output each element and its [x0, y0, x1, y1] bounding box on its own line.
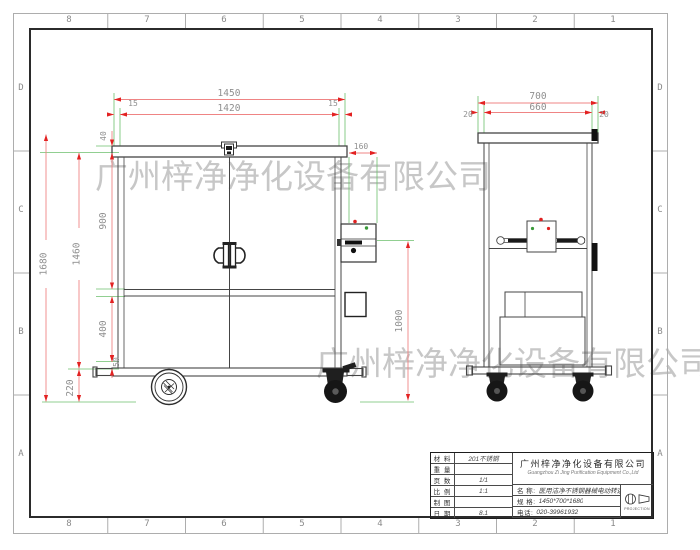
zone-top-8: 8	[59, 15, 79, 25]
dim-edge-right: 15	[328, 99, 338, 108]
zone-bottom-8: 8	[59, 519, 79, 529]
indicator-green	[365, 226, 368, 229]
side-caster-front	[487, 373, 508, 402]
name-value: 医用洁净不锈钢器械电动转运车	[539, 485, 621, 495]
projection-cell: PROJECTION	[620, 485, 653, 518]
table-row: 材 料 201不锈钢	[431, 453, 512, 464]
zone-top-4: 4	[370, 15, 390, 25]
table-row: 日 期 8.1	[431, 508, 512, 518]
zone-bottom-1: 1	[603, 519, 623, 529]
side-control-box	[337, 220, 376, 262]
row-label: 页 数	[431, 475, 455, 485]
row-value: 1:1	[455, 486, 512, 496]
table-row: 制 图	[431, 497, 512, 508]
dim-base-gap: 50	[112, 357, 121, 367]
row-label: 比 例	[431, 486, 455, 496]
row-value: 201不锈钢	[455, 453, 512, 463]
product-name-row: 名 称: 医用洁净不锈钢器械电动转运车	[513, 485, 621, 496]
phone-label: 电话:	[517, 507, 533, 517]
dim-door-region: 1460	[72, 242, 83, 265]
spec-label: 规 格:	[517, 496, 536, 506]
dim-side-height: 1000	[394, 309, 405, 332]
projection-label: PROJECTION	[624, 507, 650, 511]
indicator-red-top	[539, 218, 543, 222]
dimension-lines	[46, 100, 598, 402]
zone-bottom-7: 7	[137, 519, 157, 529]
row-label: 重 量	[431, 464, 455, 474]
dim-caster-height: 220	[65, 379, 76, 396]
phone-row: 电话: 020-39961932	[513, 507, 621, 518]
zone-left-c: C	[13, 205, 29, 215]
dim-edge-front: 20	[463, 110, 473, 119]
company-name-en: Guangzhou Zi Jing Purification Equipment…	[513, 470, 653, 476]
zone-right-b: B	[652, 327, 668, 337]
title-block: 材 料 201不锈钢 重 量 页 数 1/1 比 例 1:1 制 图 日 期 8	[430, 452, 654, 519]
spec-row: 规 格: 1450*700*1680	[513, 496, 621, 507]
spec-value: 1450*700*1680	[539, 498, 584, 505]
table-row: 重 量	[431, 464, 512, 475]
table-row: 比 例 1:1	[431, 486, 512, 497]
left-wheel	[152, 370, 187, 405]
zone-bottom-2: 2	[525, 519, 545, 529]
zone-right-c: C	[652, 205, 668, 215]
dim-edge-back: 20	[599, 110, 609, 119]
side-caster-back	[573, 373, 594, 402]
row-label: 材 料	[431, 453, 455, 463]
door-handle-left	[214, 242, 230, 269]
name-label: 名 称:	[517, 485, 536, 495]
row-label: 日 期	[431, 508, 455, 518]
zone-bottom-3: 3	[448, 519, 468, 529]
dim-total-width: 1450	[218, 88, 241, 99]
hinge-tab-top	[592, 129, 598, 141]
row-label: 制 图	[431, 497, 455, 507]
hinge-tab-mid	[592, 243, 598, 271]
indicator-red	[353, 220, 357, 224]
zone-top-6: 6	[214, 15, 234, 25]
indicator-red-2	[547, 227, 550, 230]
side-top-cap	[478, 133, 598, 143]
zone-top-5: 5	[292, 15, 312, 25]
table-row: 页 数 1/1	[431, 475, 512, 486]
title-block-table: 材 料 201不锈钢 重 量 页 数 1/1 比 例 1:1 制 图 日 期 8	[431, 453, 513, 518]
dim-total-height: 1680	[39, 252, 50, 275]
zone-bottom-4: 4	[370, 519, 390, 529]
title-block-right: 广州梓净净化设备有限公司 Guangzhou Zi Jing Purificat…	[513, 453, 653, 518]
zone-right-d: D	[652, 83, 668, 93]
zone-left-d: D	[13, 83, 29, 93]
dim-upper-section: 900	[98, 212, 109, 229]
drawing-sheet: 广州梓净净化设备有限公司 广州梓净净化设备有限公司	[0, 0, 700, 550]
zone-top-2: 2	[525, 15, 545, 25]
row-value: 1/1	[455, 475, 512, 485]
dim-inner-width: 1420	[218, 103, 241, 114]
indicator-green-2	[531, 227, 534, 230]
side-socket-box	[345, 293, 366, 317]
zone-right-a: A	[652, 449, 668, 459]
side-lower-boxes	[500, 292, 585, 365]
company-name-cn: 广州梓净净化设备有限公司	[513, 457, 653, 470]
top-latch	[222, 142, 237, 155]
dim-total-depth: 700	[529, 91, 546, 102]
zone-bottom-6: 6	[214, 519, 234, 529]
zone-bottom-5: 5	[292, 519, 312, 529]
door-handle-right	[230, 242, 246, 269]
dim-lower-section: 400	[98, 320, 109, 337]
zone-left-b: B	[13, 327, 29, 337]
dim-inner-depth: 660	[529, 102, 546, 113]
zone-top-7: 7	[137, 15, 157, 25]
phone-value: 020-39961932	[536, 509, 578, 516]
side-view-control-box	[527, 218, 556, 252]
knob	[351, 248, 356, 253]
front-view	[93, 142, 376, 405]
zone-left-a: A	[13, 449, 29, 459]
zone-top-1: 1	[603, 15, 623, 25]
dim-cap-height: 40	[99, 131, 108, 141]
row-value: 8.1	[455, 508, 512, 518]
row-value	[455, 497, 512, 507]
projection-symbol-icon	[624, 492, 651, 506]
company-cell: 广州梓净净化设备有限公司 Guangzhou Zi Jing Purificat…	[513, 453, 653, 485]
dim-side-box-width: 160	[354, 142, 369, 151]
dim-edge-left: 15	[128, 99, 138, 108]
side-view	[467, 129, 612, 402]
row-value	[455, 464, 512, 474]
zone-top-3: 3	[448, 15, 468, 25]
